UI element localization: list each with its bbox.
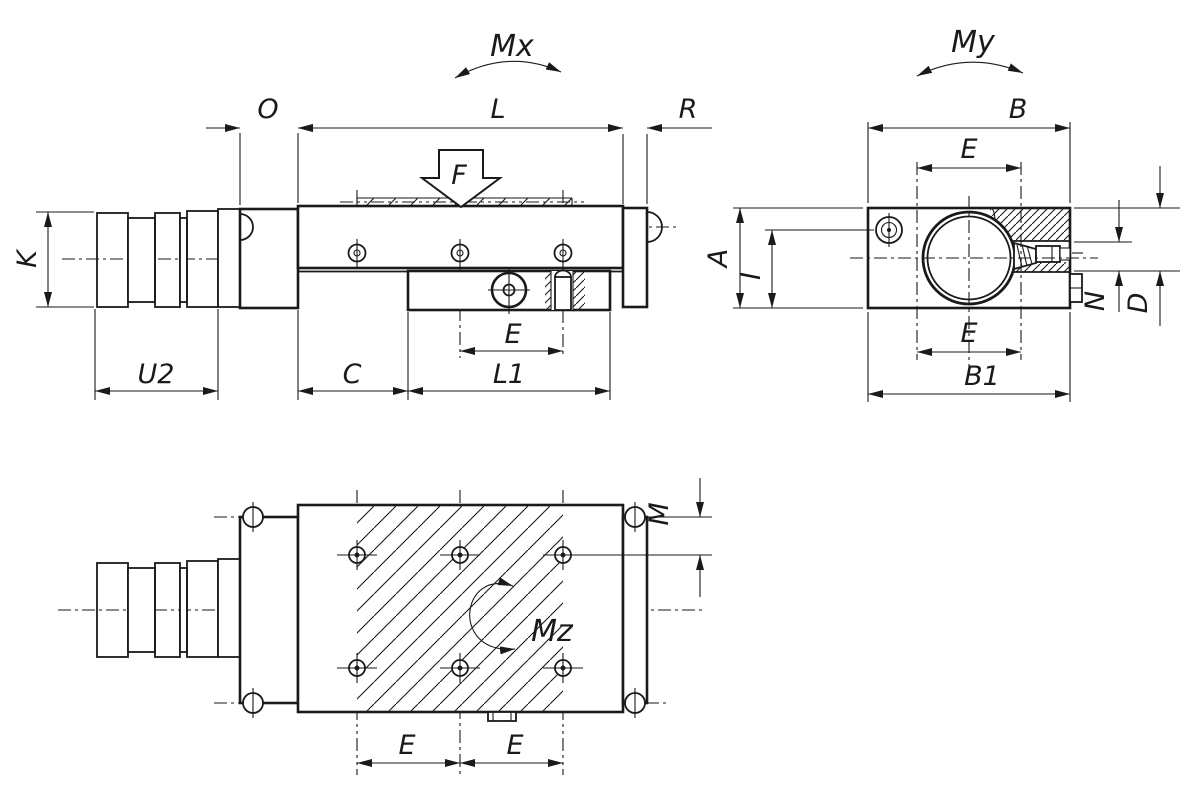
spacer-ring — [180, 568, 187, 652]
technical-drawing: F Mx O L R K — [0, 0, 1200, 787]
knurled-ring — [155, 213, 180, 307]
end-view: My B E A I E — [703, 25, 1180, 402]
spacer-ring — [128, 568, 155, 652]
spacer-ring — [128, 218, 155, 302]
moment-x-label: Mx — [490, 29, 534, 64]
dim-R: R — [647, 94, 712, 204]
dim-label-L1: L1 — [493, 359, 525, 390]
dim-A: A — [703, 208, 863, 308]
bottom-tab — [488, 712, 516, 721]
moment-z-label: Mz — [531, 614, 574, 649]
dim-label-E: E — [506, 730, 523, 761]
top-view: Mz M E E — [58, 478, 712, 775]
set-screw-hole — [545, 271, 585, 311]
dim-E-side: E — [460, 319, 563, 351]
micrometer-head-plan — [97, 559, 240, 657]
graduated-barrel — [187, 561, 218, 657]
dim-C: C — [298, 310, 408, 400]
dim-label-R: R — [679, 94, 698, 125]
dim-label-L: L — [490, 94, 505, 125]
knurled-ring — [97, 213, 128, 307]
dim-label-N: N — [1080, 291, 1111, 311]
dim-U2: U2 — [95, 309, 218, 400]
dim-label-E: E — [960, 134, 977, 165]
dim-E-bottom: E — [917, 318, 1021, 352]
barrel-collar — [218, 559, 240, 657]
dim-label-D: D — [1123, 293, 1154, 314]
dim-label-B: B — [1009, 94, 1028, 125]
micrometer-head — [97, 209, 240, 307]
dim-I: I — [736, 230, 874, 308]
drawing-canvas: F Mx O L R K — [0, 0, 1200, 787]
dim-label-K: K — [12, 248, 43, 268]
barrel-collar — [218, 209, 240, 307]
side-view: F Mx O L R K — [12, 29, 712, 400]
dim-label-A: A — [703, 249, 734, 269]
spacer-ring — [180, 218, 187, 302]
dim-label-E: E — [398, 730, 415, 761]
moment-arc-icon — [917, 62, 1023, 76]
mounting-body — [240, 209, 298, 308]
dim-label-I: I — [736, 272, 767, 280]
dim-label-B1: B1 — [964, 361, 1000, 392]
dim-label-C: C — [343, 359, 362, 390]
dim-E-left: E — [357, 730, 460, 763]
dim-label-E: E — [960, 318, 977, 349]
dim-E-top: E — [917, 134, 1021, 168]
dim-M: M — [644, 478, 712, 597]
dim-O: O — [206, 94, 332, 205]
dim-label-U2: U2 — [138, 359, 175, 390]
moment-y-label: My — [951, 25, 996, 60]
dim-label-E: E — [504, 319, 521, 350]
dim-E-right: E — [460, 730, 563, 763]
left-end-cap — [240, 517, 298, 703]
dim-label-O: O — [257, 94, 278, 125]
dim-label-M: M — [644, 502, 675, 525]
right-end-cap — [623, 517, 647, 703]
end-plate — [623, 208, 647, 307]
force-label: F — [451, 160, 467, 191]
